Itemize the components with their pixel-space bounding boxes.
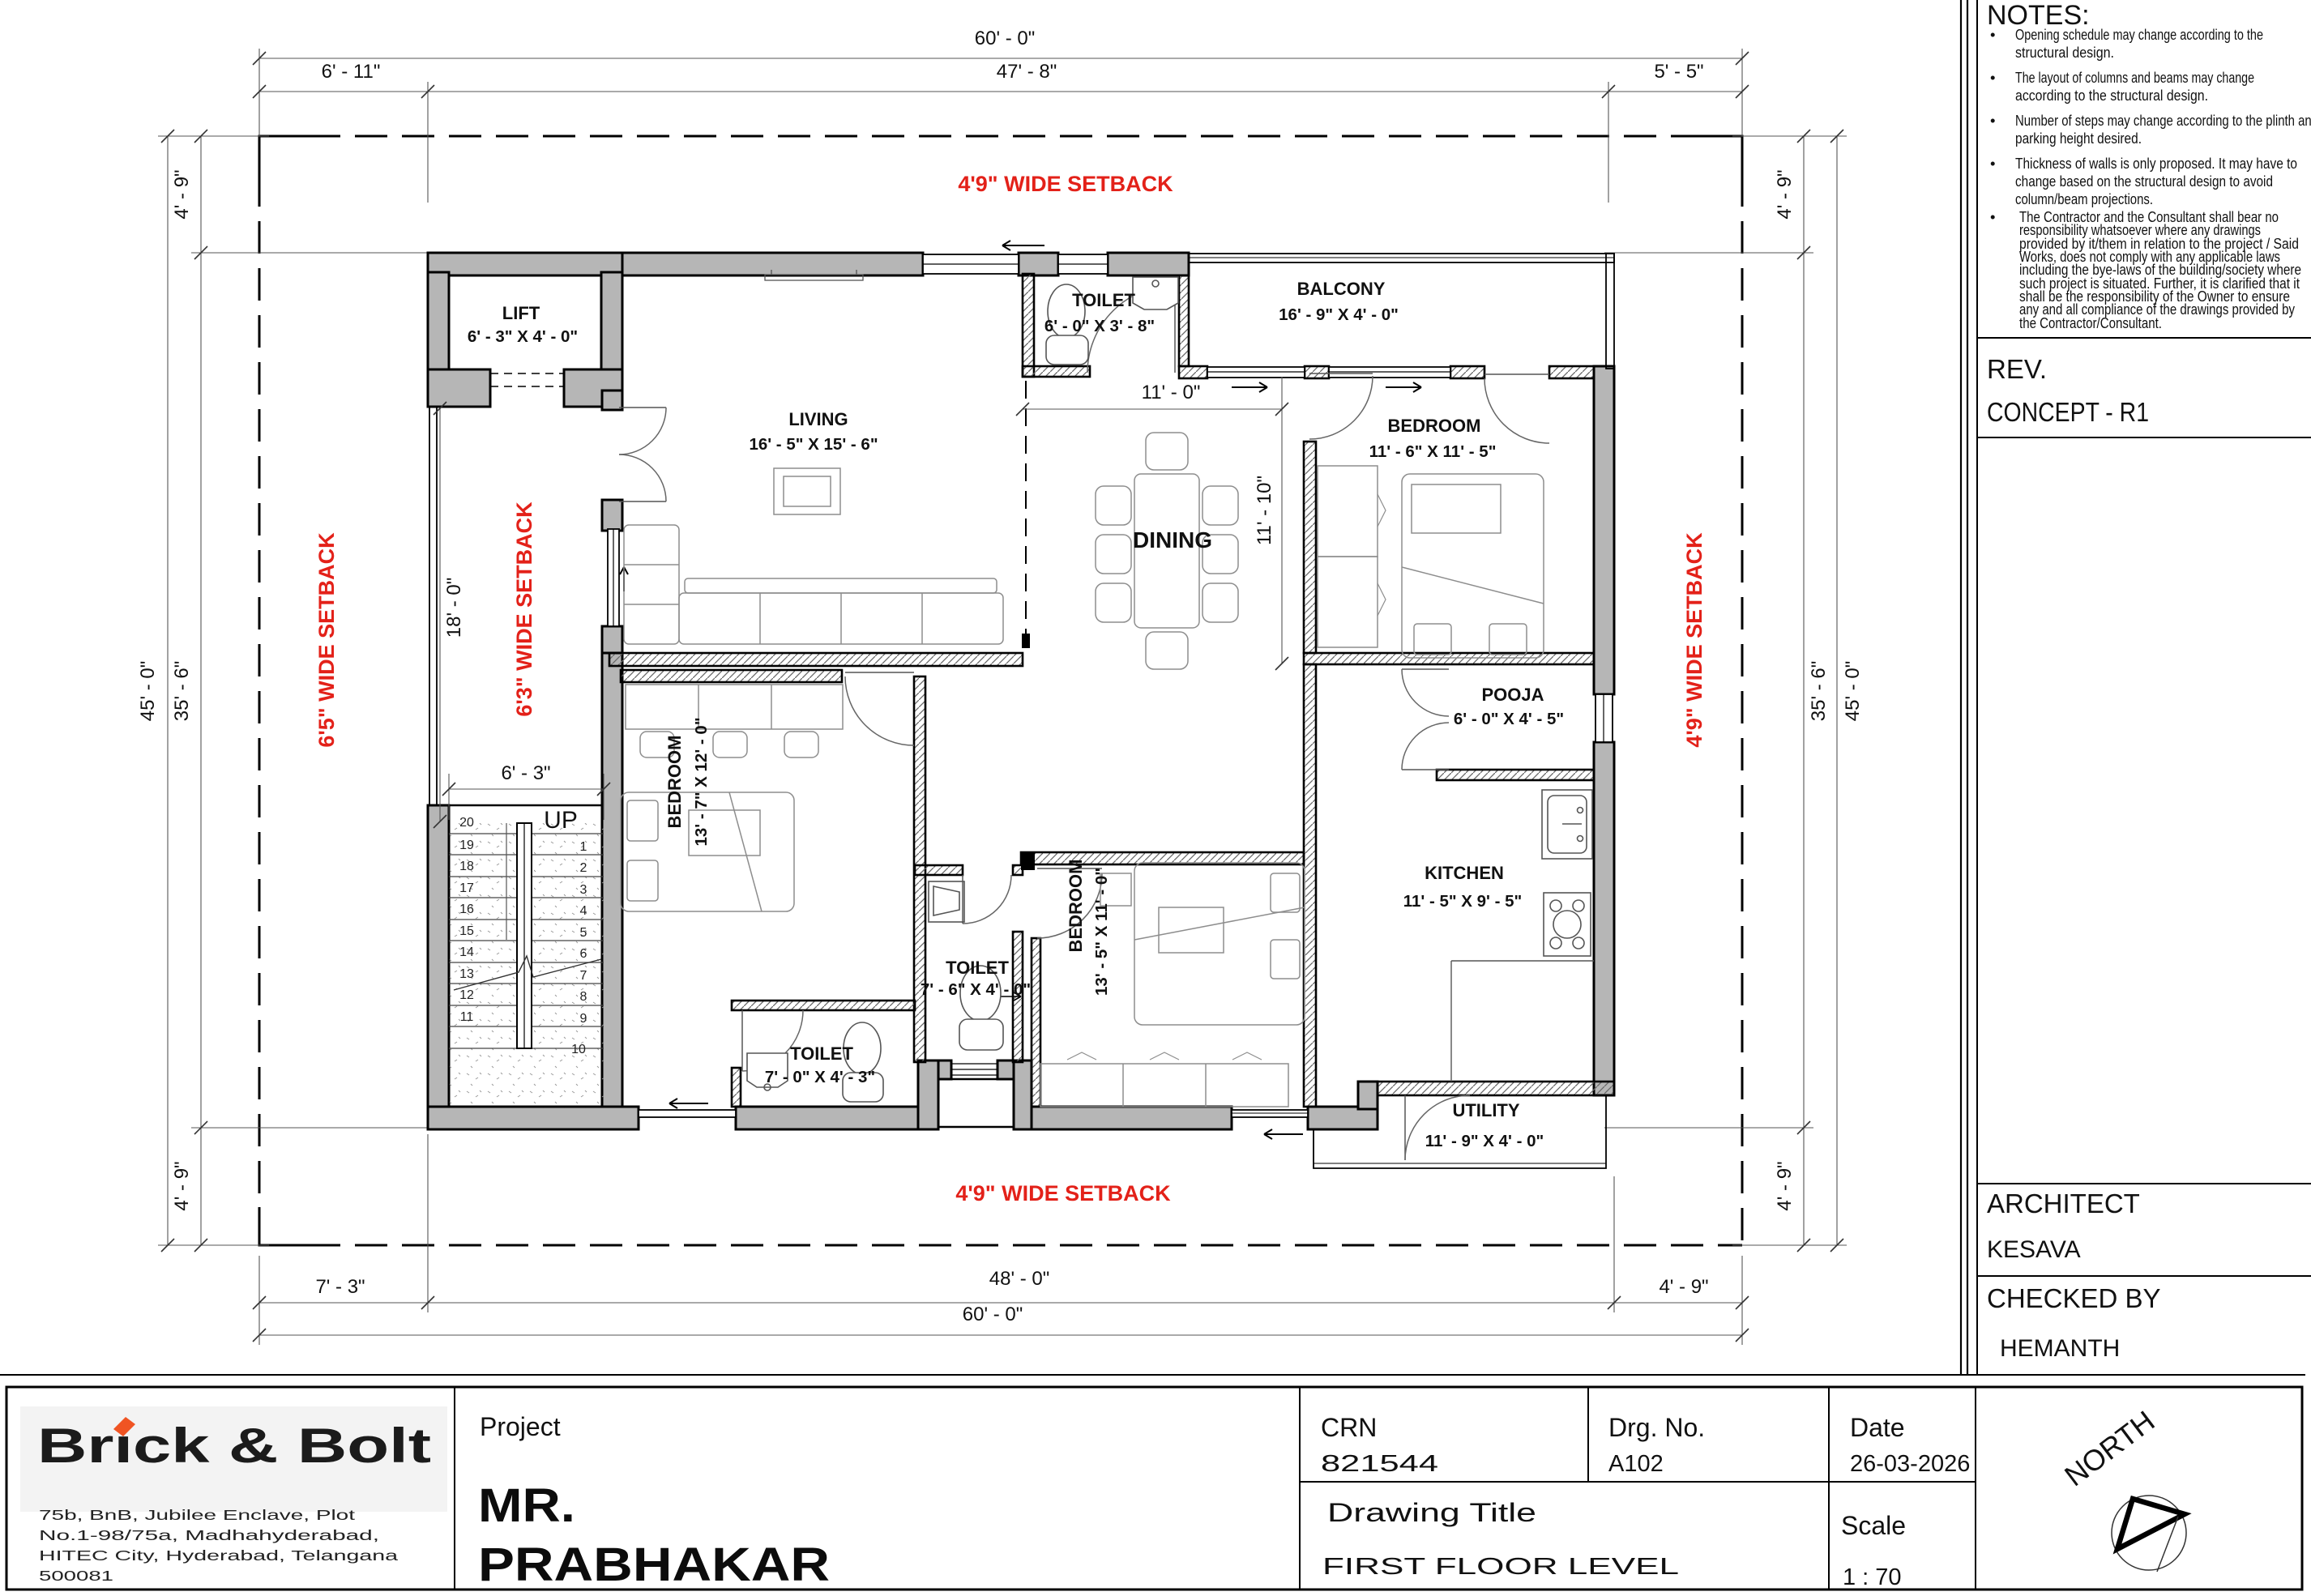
svg-text:•: • xyxy=(1990,26,1995,43)
svg-text:No.1-98/75a, Madhahyderabad,: No.1-98/75a, Madhahyderabad, xyxy=(39,1527,379,1543)
svg-text:16' - 9" X 4' - 0": 16' - 9" X 4' - 0" xyxy=(1279,305,1399,324)
svg-text:change based on the structural: change based on the structural design to… xyxy=(2015,173,2273,190)
svg-text:parking height desired.: parking height desired. xyxy=(2015,130,2142,147)
svg-text:14: 14 xyxy=(459,945,474,959)
svg-text:ARCHITECT: ARCHITECT xyxy=(1987,1188,2140,1218)
svg-text:6' - 3" X 4' - 0": 6' - 3" X 4' - 0" xyxy=(468,327,578,346)
svg-text:15: 15 xyxy=(459,924,474,938)
svg-text:6'3" WIDE SETBACK: 6'3" WIDE SETBACK xyxy=(512,501,536,717)
svg-text:13' - 7" X 12' - 0": 13' - 7" X 12' - 0" xyxy=(692,717,711,846)
svg-text:6' - 11": 6' - 11" xyxy=(322,61,381,83)
svg-text:5: 5 xyxy=(580,926,587,940)
svg-text:HITEC City, Hyderabad, Telanga: HITEC City, Hyderabad, Telangana xyxy=(39,1547,398,1564)
svg-text:TOILET: TOILET xyxy=(1072,290,1135,310)
svg-text:according to the structural de: according to the structural design. xyxy=(2015,87,2208,104)
svg-text:CONCEPT - R1: CONCEPT - R1 xyxy=(1987,397,2149,427)
svg-text:35' - 6": 35' - 6" xyxy=(1808,661,1830,721)
svg-text:Drawing Title: Drawing Title xyxy=(1327,1498,1536,1527)
svg-text:PRABHAKAR: PRABHAKAR xyxy=(478,1538,830,1591)
svg-text:Scale: Scale xyxy=(1841,1511,1906,1540)
svg-text:19: 19 xyxy=(459,839,474,852)
svg-text:16' - 5" X 15' - 6": 16' - 5" X 15' - 6" xyxy=(749,435,878,454)
svg-text:45' - 0": 45' - 0" xyxy=(137,661,159,721)
svg-text:11' - 6" X 11' - 5": 11' - 6" X 11' - 5" xyxy=(1369,442,1497,461)
svg-text:•: • xyxy=(1990,208,1995,225)
svg-text:•: • xyxy=(1990,155,1995,172)
svg-text:10: 10 xyxy=(571,1043,586,1056)
svg-text:4'9" WIDE SETBACK: 4'9" WIDE SETBACK xyxy=(955,1181,1171,1206)
svg-text:18: 18 xyxy=(459,860,474,873)
svg-text:7' - 6" X 4' - 0": 7' - 6" X 4' - 0" xyxy=(921,980,1031,999)
svg-text:DINING: DINING xyxy=(1133,527,1212,553)
svg-text:6' - 0" X 3' - 8": 6' - 0" X 3' - 8" xyxy=(1044,317,1155,335)
svg-text:TOILET: TOILET xyxy=(790,1043,853,1064)
svg-text:4' - 9": 4' - 9" xyxy=(171,169,193,219)
svg-text:1: 1 xyxy=(580,840,587,854)
svg-text:CHECKED BY: CHECKED BY xyxy=(1987,1283,2161,1313)
svg-text:The layout of columns and beam: The layout of columns and beams may chan… xyxy=(2015,69,2254,86)
svg-text:1 : 70: 1 : 70 xyxy=(1843,1564,1902,1590)
svg-text:12: 12 xyxy=(459,988,474,1002)
svg-text:11' - 0": 11' - 0" xyxy=(1142,382,1201,403)
svg-text:4' - 9": 4' - 9" xyxy=(1659,1276,1708,1298)
svg-text:6'5" WIDE SETBACK: 6'5" WIDE SETBACK xyxy=(314,532,339,748)
svg-text:Project: Project xyxy=(480,1412,561,1441)
svg-text:structural design.: structural design. xyxy=(2015,44,2114,61)
svg-text:6: 6 xyxy=(580,947,587,961)
svg-text:FIRST FLOOR LEVEL: FIRST FLOOR LEVEL xyxy=(1322,1554,1679,1580)
svg-text:75b, BnB, Jubilee Enclave, Plo: 75b, BnB, Jubilee Enclave, Plot xyxy=(39,1507,355,1523)
svg-text:47' - 8": 47' - 8" xyxy=(997,61,1057,83)
svg-text:26-03-2026: 26-03-2026 xyxy=(1850,1451,1970,1477)
svg-text:LIVING: LIVING xyxy=(788,409,848,429)
svg-text:4'9" WIDE SETBACK: 4'9" WIDE SETBACK xyxy=(1682,532,1707,748)
svg-text:48' - 0": 48' - 0" xyxy=(989,1268,1049,1290)
svg-text:4: 4 xyxy=(580,904,587,918)
svg-text:UTILITY: UTILITY xyxy=(1452,1100,1519,1120)
svg-text:2: 2 xyxy=(580,861,587,875)
svg-text:POOJA: POOJA xyxy=(1481,685,1544,705)
svg-text:CRN: CRN xyxy=(1321,1413,1377,1442)
svg-text:UP: UP xyxy=(544,807,578,834)
svg-text:6' - 3": 6' - 3" xyxy=(501,762,550,784)
svg-text:Number of steps may change acc: Number of steps may change according to … xyxy=(2015,112,2311,129)
svg-text:MR.: MR. xyxy=(478,1479,575,1532)
svg-text:4' - 9": 4' - 9" xyxy=(1774,1161,1796,1210)
svg-text:Thickness of walls is only pro: Thickness of walls is only proposed. It … xyxy=(2015,155,2297,172)
svg-text:BEDROOM: BEDROOM xyxy=(664,736,685,829)
svg-text:11' - 5" X 9' - 5": 11' - 5" X 9' - 5" xyxy=(1403,892,1523,911)
svg-text:3: 3 xyxy=(580,883,587,897)
svg-text:HEMANTH: HEMANTH xyxy=(2000,1335,2120,1362)
svg-text:4'9" WIDE SETBACK: 4'9" WIDE SETBACK xyxy=(958,172,1173,196)
svg-text:13: 13 xyxy=(459,967,474,981)
svg-text:16: 16 xyxy=(459,903,474,916)
svg-text:20: 20 xyxy=(459,816,474,830)
svg-text:7' - 0" X 4' - 3": 7' - 0" X 4' - 3" xyxy=(765,1068,875,1086)
svg-text:17: 17 xyxy=(459,881,474,895)
svg-text:60' - 0": 60' - 0" xyxy=(975,28,1035,49)
svg-text:LIFT: LIFT xyxy=(502,303,540,323)
svg-text:9: 9 xyxy=(580,1012,587,1026)
svg-text:column/beam projections.: column/beam projections. xyxy=(2015,190,2153,207)
svg-text:•: • xyxy=(1990,69,1995,86)
svg-text:8: 8 xyxy=(580,990,587,1004)
svg-text:Brıck & Bolt: Brıck & Bolt xyxy=(37,1419,431,1473)
svg-text:45' - 0": 45' - 0" xyxy=(1842,661,1864,721)
svg-text:A102: A102 xyxy=(1608,1451,1664,1477)
svg-text:BEDROOM: BEDROOM xyxy=(1388,416,1481,436)
svg-text:6' - 0" X 4' - 5": 6' - 0" X 4' - 5" xyxy=(1454,710,1564,728)
svg-text:the Contractor/Consultant.: the Contractor/Consultant. xyxy=(2019,314,2162,331)
svg-text:11' - 10": 11' - 10" xyxy=(1254,476,1275,545)
svg-text:KITCHEN: KITCHEN xyxy=(1425,863,1504,883)
svg-text:REV.: REV. xyxy=(1987,354,2047,384)
svg-text:•: • xyxy=(1990,112,1995,129)
svg-text:7: 7 xyxy=(580,969,587,983)
svg-text:4' - 9": 4' - 9" xyxy=(1774,169,1796,219)
svg-text:5' - 5": 5' - 5" xyxy=(1654,61,1703,83)
svg-text:18' - 0": 18' - 0" xyxy=(443,578,465,638)
svg-text:TOILET: TOILET xyxy=(946,958,1009,978)
svg-text:Date: Date xyxy=(1850,1413,1905,1442)
svg-text:KESAVA: KESAVA xyxy=(1987,1236,2081,1263)
svg-text:500081: 500081 xyxy=(39,1568,113,1584)
svg-text:7' - 3": 7' - 3" xyxy=(315,1276,365,1298)
svg-text:35' - 6": 35' - 6" xyxy=(171,661,193,721)
svg-text:Drg. No.: Drg. No. xyxy=(1608,1413,1705,1442)
svg-text:BALCONY: BALCONY xyxy=(1297,279,1386,299)
svg-text:60' - 0": 60' - 0" xyxy=(963,1304,1023,1325)
svg-text:11: 11 xyxy=(460,1010,474,1024)
svg-text:BEDROOM: BEDROOM xyxy=(1066,860,1086,953)
svg-text:13' - 5" X 11' - 0": 13' - 5" X 11' - 0" xyxy=(1092,868,1111,996)
svg-text:821544: 821544 xyxy=(1321,1451,1438,1477)
svg-text:11' - 9" X 4' - 0": 11' - 9" X 4' - 0" xyxy=(1425,1132,1544,1150)
svg-text:Opening schedule may change ac: Opening schedule may change according to… xyxy=(2015,26,2263,43)
svg-text:4' - 9": 4' - 9" xyxy=(171,1161,193,1210)
